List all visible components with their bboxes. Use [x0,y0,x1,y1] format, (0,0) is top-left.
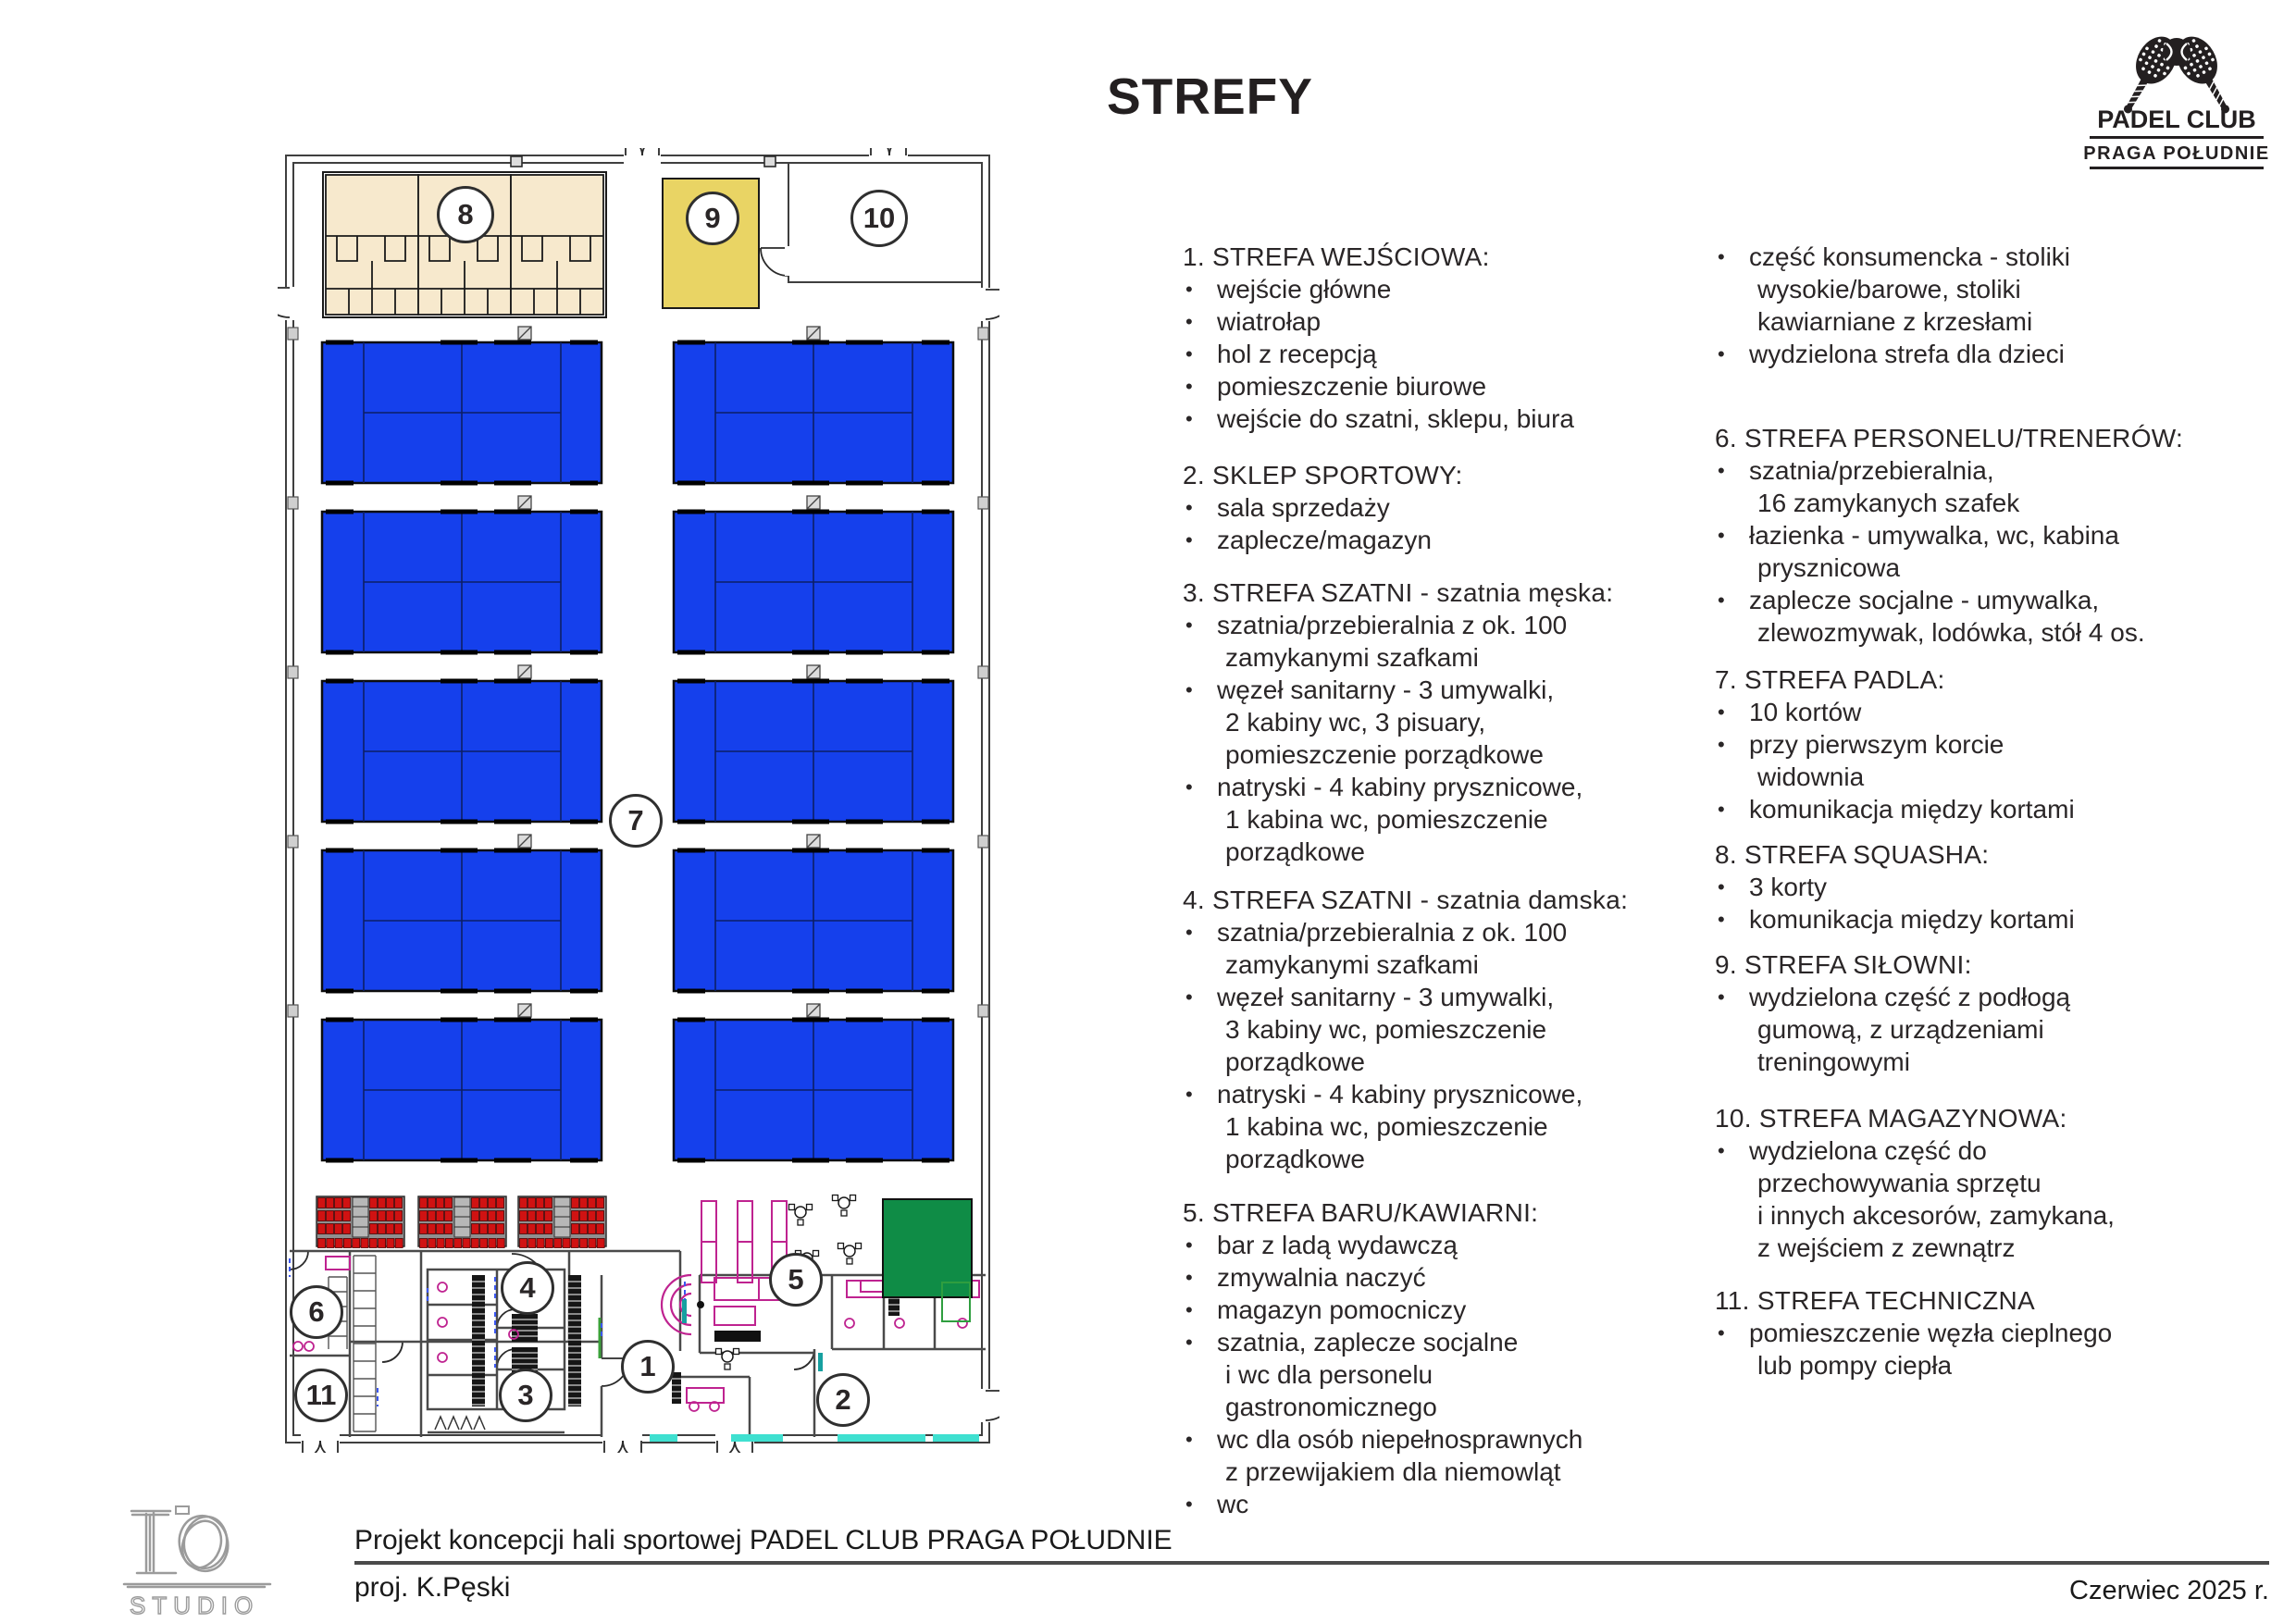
legend-section: 8. STREFA SQUASHA:•3 korty•komunikacja m… [1715,838,2270,935]
padel-ball-icon [2163,38,2191,66]
bullet-icon: • [1715,454,1749,487]
legend-item-line: treningowymi [1715,1046,2270,1078]
legend-section-header: 9. STREFA SIŁOWNI: [1715,948,2270,981]
legend-item-line: gumową, z urządzeniami [1715,1013,2270,1046]
legend-item-line: •10 kortów [1715,696,2270,728]
legend-item-line: widownia [1715,761,2270,793]
bullet-icon: • [1183,1229,1217,1261]
legend-item-line: •wc dla osób niepełnosprawnych [1183,1423,1738,1456]
bullet-icon: • [1183,771,1217,803]
zone-circle-1: 1 [621,1340,675,1394]
legend-section-header: 2. SKLEP SPORTOWY: [1183,459,1738,491]
legend-item-line: •wydzielona część z podłogą [1715,981,2270,1013]
bullet-icon: • [1183,1078,1217,1110]
legend-item-line: •szatnia/przebieralnia z ok. 100 [1183,916,1738,948]
zone-circle-10: 10 [850,190,908,247]
legend-section-header: 4. STREFA SZATNI - szatnia damska: [1183,884,1738,916]
bullet-icon: • [1715,871,1749,903]
legend-item-line: porządkowe [1183,836,1738,868]
legend-item-line: •magazyn pomocniczy [1183,1294,1738,1326]
legend-item-line: •3 korty [1715,871,2270,903]
legend-item-line: i innych akcesorów, zamykana, [1715,1199,2270,1232]
legend-section-header: 8. STREFA SQUASHA: [1715,838,2270,871]
legend-item-line: •wydzielona strefa dla dzieci [1715,338,2270,370]
bullet-icon: • [1183,273,1217,305]
bullet-icon: • [1183,1488,1217,1520]
legend-item-line: •wejście do szatni, sklepu, biura [1183,403,1738,435]
bullet-icon: • [1183,491,1217,524]
legend-item-line: zlewozmywak, lodówka, stół 4 os. [1715,616,2270,649]
bullet-icon: • [1715,981,1749,1013]
bullet-icon: • [1183,1261,1217,1294]
footer-author: proj. K.Pęski [354,1572,510,1604]
legend-section: 9. STREFA SIŁOWNI:•wydzielona część z po… [1715,948,2270,1078]
bullet-icon: • [1715,1317,1749,1349]
legend-section: 11. STREFA TECHNICZNA•pomieszczenie węzł… [1715,1284,2270,1381]
legend-item-line: •zmywalnia naczyć [1183,1261,1738,1294]
page-title: STREFY [1107,67,1313,126]
legend-section-header: 10. STREFA MAGAZYNOWA: [1715,1102,2270,1134]
spectator-stands [316,1196,606,1248]
legend-item-line: porządkowe [1183,1046,1738,1078]
legend-item-line: •komunikacja między kortami [1715,793,2270,825]
bullet-icon: • [1183,609,1217,641]
legend-section-header: 1. STREFA WEJŚCIOWA: [1183,241,1738,273]
zone-circle-11: 11 [294,1369,348,1422]
zone-circle-7: 7 [609,794,663,848]
bullet-icon: • [1715,728,1749,761]
bullet-icon: • [1183,916,1217,948]
bullet-icon: • [1183,1326,1217,1358]
legend-section-header: 7. STREFA PADLA: [1715,663,2270,696]
bullet-icon: • [1715,519,1749,551]
legend-section: 1. STREFA WEJŚCIOWA:•wejście główne•wiat… [1183,241,1738,435]
studio-logo-text: STUDIO [130,1592,259,1619]
legend-section-header: 3. STREFA SZATNI - szatnia męska: [1183,576,1738,609]
legend-item-line: •szatnia, zaplecze socjalne [1183,1326,1738,1358]
legend-item-line: •węzeł sanitarny - 3 umywalki, [1183,674,1738,706]
legend-item-line: •węzeł sanitarny - 3 umywalki, [1183,981,1738,1013]
legend-item-line: 16 zamykanych szafek [1715,487,2270,519]
legend-item-line: •zaplecze socjalne - umywalka, [1715,584,2270,616]
bullet-icon: • [1715,793,1749,825]
zone-circle-9: 9 [686,192,739,245]
legend-item-line: z wejściem z zewnątrz [1715,1232,2270,1264]
legend-item-line: •bar z ladą wydawczą [1183,1229,1738,1261]
bullet-icon: • [1183,524,1217,556]
footer-date: Czerwiec 2025 r. [2069,1576,2269,1606]
bullet-icon: • [1715,1134,1749,1167]
legend-item-line: •szatnia/przebieralnia z ok. 100 [1183,609,1738,641]
legend-section: 4. STREFA SZATNI - szatnia damska:•szatn… [1183,884,1738,1175]
bullet-icon: • [1715,696,1749,728]
legend-item-line: •zaplecze/magazyn [1183,524,1738,556]
bullet-icon: • [1715,338,1749,370]
legend-item-line: •przy pierwszym korcie [1715,728,2270,761]
legend-section: 2. SKLEP SPORTOWY:•sala sprzedaży•zaplec… [1183,459,1738,556]
zone-circle-5: 5 [769,1253,823,1307]
legend-section: 10. STREFA MAGAZYNOWA:•wydzielona część … [1715,1102,2270,1264]
bullet-icon: • [1183,338,1217,370]
legend-section: 7. STREFA PADLA:•10 kortów•przy pierwszy… [1715,663,2270,825]
bullet-icon: • [1183,981,1217,1013]
legend-item-line: pomieszczenie porządkowe [1183,738,1738,771]
zone-circle-3: 3 [499,1369,552,1422]
legend-item-line: •pomieszczenie węzła cieplnego [1715,1317,2270,1349]
zone-circle-2: 2 [816,1373,870,1427]
legend-item-line: wysokie/barowe, stoliki [1715,273,2270,305]
legend-item-line: z przewijakiem dla niemowląt [1183,1456,1738,1488]
legend-item-line: 1 kabina wc, pomieszczenie [1183,803,1738,836]
legend-column-2: •część konsumencka - stolikiwysokie/baro… [1715,241,2270,1381]
legend-section-header: 6. STREFA PERSONELU/TRENERÓW: [1715,422,2270,454]
bullet-icon: • [1715,584,1749,616]
bullet-icon: • [1183,403,1217,435]
logo-title: PADEL CLUB [2097,105,2256,133]
page-root: STREFY PADEL CLUB PRAGA POŁUDNIE [0,0,2296,1623]
legend-item-line: •wiatrołap [1183,305,1738,338]
legend-section: 3. STREFA SZATNI - szatnia męska:•szatni… [1183,576,1738,868]
legend-item-line: kawiarniane z krzesłami [1715,305,2270,338]
padel-courts [322,342,953,1160]
legend-item-line: 3 kabiny wc, pomieszczenie [1183,1013,1738,1046]
legend-item-line: i wc dla personelu [1183,1358,1738,1391]
bullet-icon: • [1183,370,1217,403]
footer-divider [354,1561,2269,1565]
bullet-icon: • [1183,1423,1217,1456]
logo-subtitle: PRAGA POŁUDNIE [2083,143,2269,164]
bullet-icon: • [1715,903,1749,935]
legend-item-line: •wydzielona część do [1715,1134,2270,1167]
bullet-icon: • [1183,1294,1217,1326]
legend-item-line: •część konsumencka - stoliki [1715,241,2270,273]
legend-item-line: przechowywania sprzętu [1715,1167,2270,1199]
legend-section: 5. STREFA BARU/KAWIARNI:•bar z ladą wyda… [1183,1196,1738,1520]
legend-section-header: 11. STREFA TECHNICZNA [1715,1284,2270,1317]
legend-item-line: zamykanymi szafkami [1183,641,1738,674]
zone-circle-6: 6 [290,1285,343,1339]
legend-item-line: gastronomicznego [1183,1391,1738,1423]
legend-item-line: •natryski - 4 kabiny prysznicowe, [1183,1078,1738,1110]
padel-rackets-icon: PADEL CLUB PRAGA POŁUDNIE [2080,13,2273,181]
footer-project-title: Projekt koncepcji hali sportowej PADEL C… [354,1525,1173,1556]
legend-item-line: zamykanymi szafkami [1183,948,1738,981]
zone-circle-4: 4 [501,1261,554,1315]
legend-item-line: lub pompy ciepła [1715,1349,2270,1381]
bench-hooks [435,1417,485,1430]
legend-section: 6. STREFA PERSONELU/TRENERÓW:•szatnia/pr… [1715,422,2270,649]
legend-item-line: 1 kabina wc, pomieszczenie [1183,1110,1738,1143]
padel-club-logo: PADEL CLUB PRAGA POŁUDNIE [2080,13,2273,181]
bullet-icon: • [1183,305,1217,338]
legend-section-header: 5. STREFA BARU/KAWIARNI: [1183,1196,1738,1229]
legend-item-line: •łazienka - umywalka, wc, kabina [1715,519,2270,551]
legend-item-line: •pomieszczenie biurowe [1183,370,1738,403]
legend-item-line: •hol z recepcją [1183,338,1738,370]
legend-item-line: •szatnia/przebieralnia, [1715,454,2270,487]
legend-item-line: 2 kabiny wc, 3 pisuary, [1183,706,1738,738]
legend-item-line: prysznicowa [1715,551,2270,584]
bullet-icon: • [1715,241,1749,273]
legend-item-line: porządkowe [1183,1143,1738,1175]
legend-item-line: •sala sprzedaży [1183,491,1738,524]
bullet-icon: • [1183,674,1217,706]
legend-item-line: •natryski - 4 kabiny prysznicowe, [1183,771,1738,803]
legend-item-line: •wejście główne [1183,273,1738,305]
legend-column-1: 1. STREFA WEJŚCIOWA:•wejście główne•wiat… [1183,241,1738,1520]
legend-item-line: •komunikacja między kortami [1715,903,2270,935]
legend-section: •część konsumencka - stolikiwysokie/baro… [1715,241,2270,370]
legend-item-line: •wc [1183,1488,1738,1520]
zone-circle-8: 8 [437,186,494,243]
studio-logo: STUDIO [118,1497,294,1622]
